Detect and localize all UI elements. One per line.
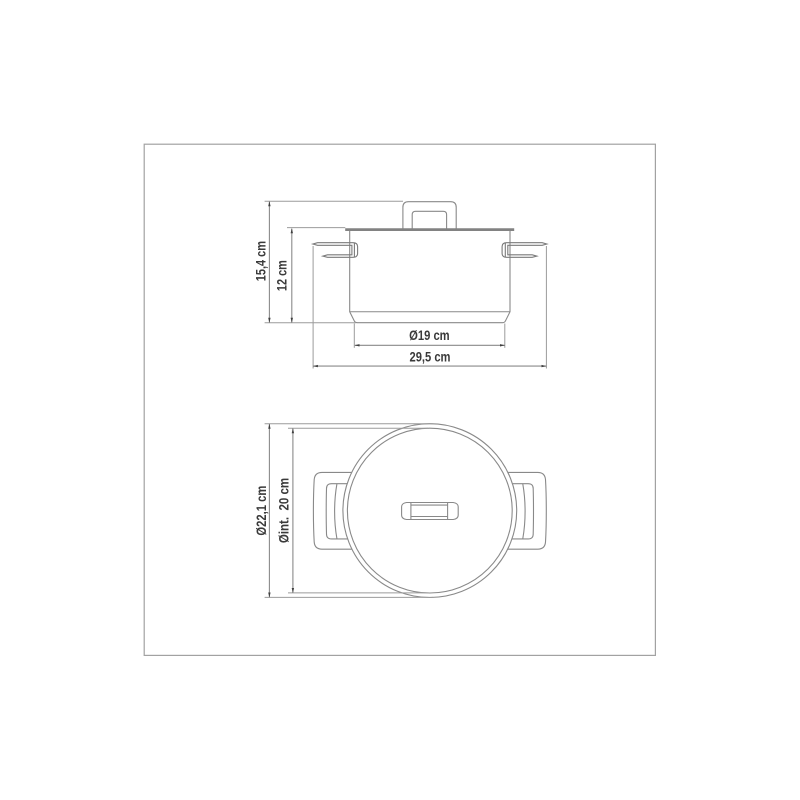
svg-text:29,5 cm: 29,5 cm [410,349,451,364]
svg-text:Ø22,1 cm: Ø22,1 cm [254,486,269,536]
svg-text:12 cm: 12 cm [274,260,289,291]
svg-text:Øint. 20 cm: Øint. 20 cm [276,478,291,543]
svg-text:Ø19 cm: Ø19 cm [409,328,450,343]
svg-text:15,4 cm: 15,4 cm [253,241,268,281]
